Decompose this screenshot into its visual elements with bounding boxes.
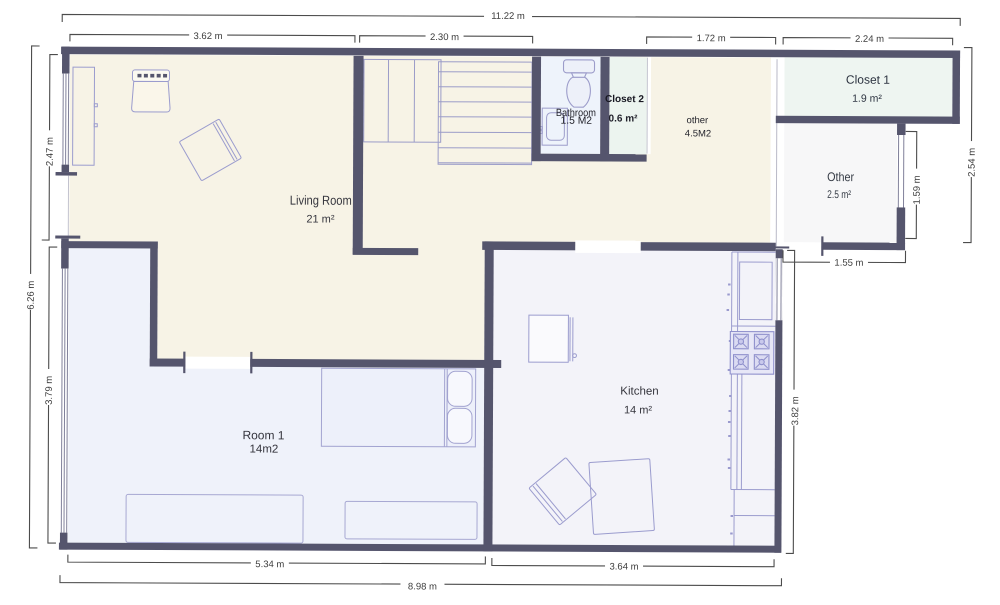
- svg-text:other: other: [687, 115, 709, 126]
- svg-text:2.5 m²: 2.5 m²: [827, 189, 851, 201]
- svg-text:0.6 m²: 0.6 m²: [609, 113, 639, 124]
- svg-text:3.62 m: 3.62 m: [193, 31, 222, 42]
- svg-text:2.30 m: 2.30 m: [430, 32, 459, 43]
- svg-text:Kitchen: Kitchen: [620, 386, 658, 398]
- svg-text:3.82 m: 3.82 m: [790, 396, 801, 425]
- svg-text:Closet 1: Closet 1: [846, 73, 890, 87]
- svg-text:2.54 m: 2.54 m: [967, 148, 978, 177]
- svg-text:3.79 m: 3.79 m: [44, 376, 55, 405]
- svg-text:1.5 M2: 1.5 M2: [561, 115, 593, 127]
- svg-text:14 m²: 14 m²: [624, 404, 653, 416]
- svg-text:Closet 2: Closet 2: [605, 94, 644, 105]
- svg-text:Other: Other: [827, 170, 854, 184]
- svg-text:Living Room: Living Room: [290, 193, 352, 208]
- svg-text:Room 1: Room 1: [242, 428, 284, 442]
- svg-text:1.72 m: 1.72 m: [697, 33, 726, 44]
- svg-text:6.26 m: 6.26 m: [26, 281, 37, 310]
- svg-text:2.24 m: 2.24 m: [855, 34, 884, 45]
- svg-text:8.98 m: 8.98 m: [408, 581, 437, 592]
- svg-text:14m2: 14m2: [250, 444, 279, 456]
- svg-text:21 m²: 21 m²: [306, 213, 335, 225]
- svg-text:4.5M2: 4.5M2: [685, 128, 711, 139]
- svg-text:3.64 m: 3.64 m: [609, 561, 638, 572]
- svg-text:2.47 m: 2.47 m: [45, 137, 56, 166]
- svg-text:5.34 m: 5.34 m: [255, 559, 284, 570]
- svg-text:1.9 m²: 1.9 m²: [852, 93, 882, 105]
- svg-text:1.59 m: 1.59 m: [912, 175, 923, 204]
- svg-text:11.22 m: 11.22 m: [491, 11, 525, 22]
- svg-text:1.55 m: 1.55 m: [834, 258, 863, 269]
